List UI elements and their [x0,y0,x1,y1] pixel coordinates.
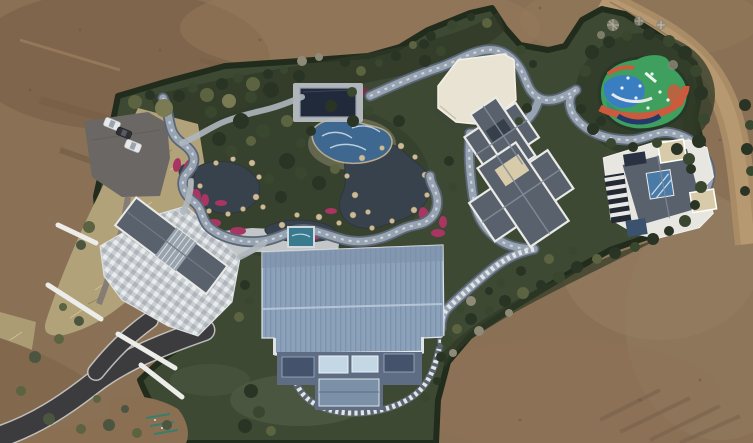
window [319,356,348,373]
rooftop-spa [288,227,314,247]
dark-glass [625,218,647,237]
aerial-photo [0,0,753,443]
estate-aerial-scene [0,0,753,443]
window [282,357,314,377]
lawn-highlight-2 [170,364,250,396]
window [352,356,378,372]
window [384,354,414,372]
blue-roof-hall [262,227,444,410]
